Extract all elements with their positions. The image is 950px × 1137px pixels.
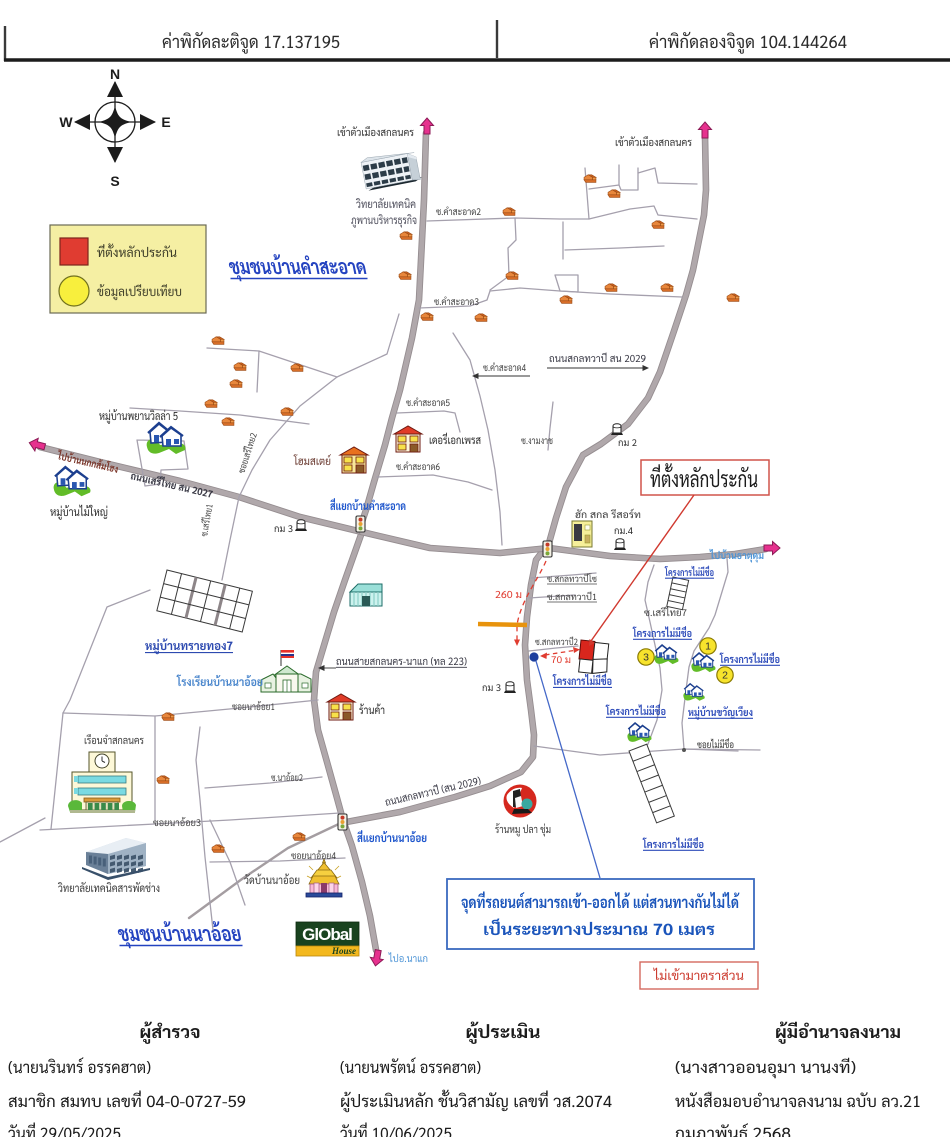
svg-text:N: N [110, 66, 120, 82]
svg-text:3: 3 [643, 652, 649, 664]
svg-text:W: W [59, 114, 73, 130]
svg-text:E: E [161, 114, 170, 130]
svg-text:S: S [110, 173, 119, 189]
svg-text:GlObal: GlObal [302, 925, 352, 944]
svg-text:House: House [331, 946, 356, 956]
svg-text:2: 2 [722, 670, 728, 682]
svg-text:1: 1 [705, 641, 711, 653]
